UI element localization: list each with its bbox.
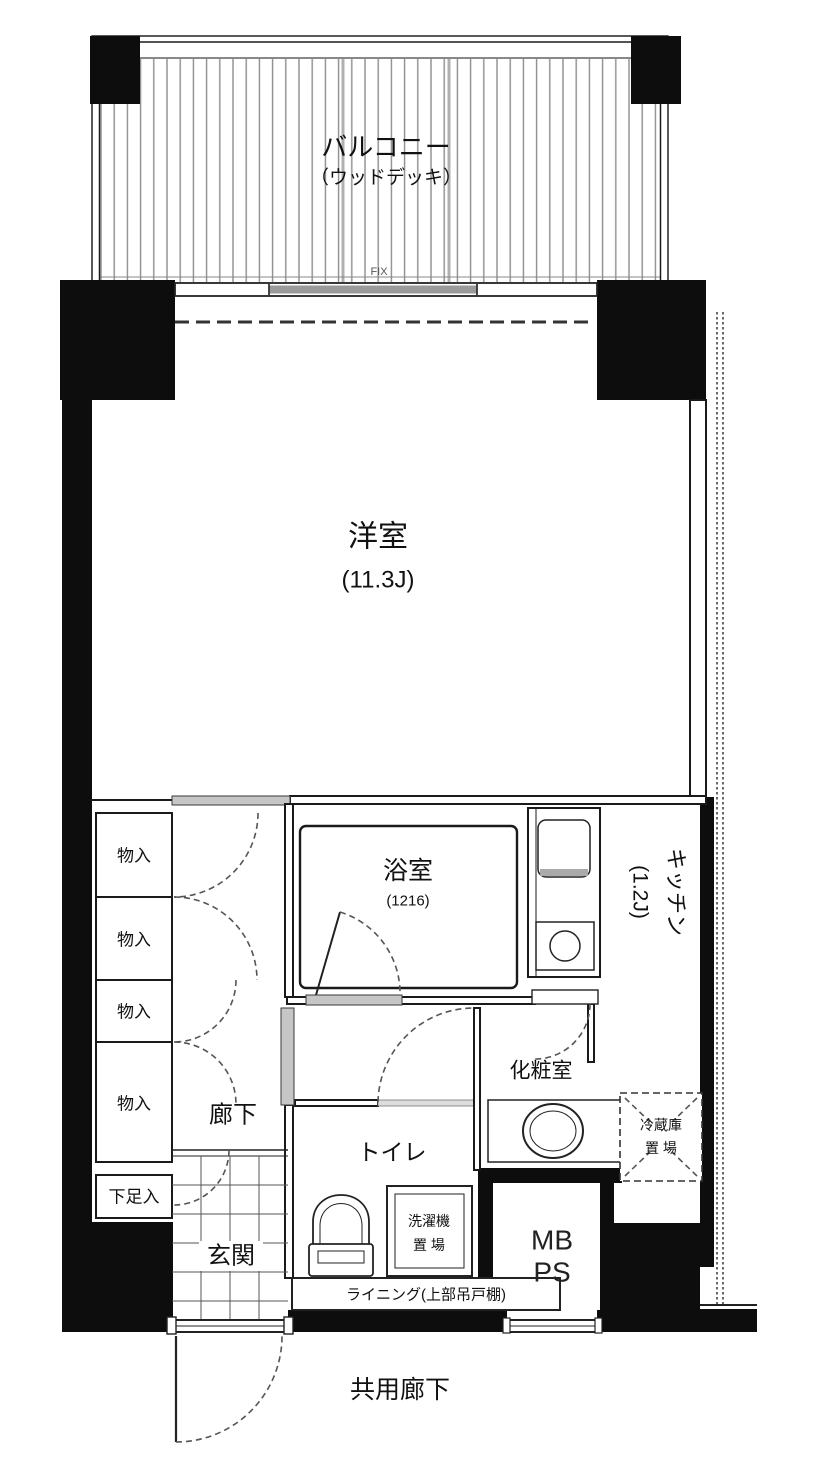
closet-3-door-swing [174,980,236,1042]
closet-3-label: 物入 [117,1003,151,1022]
door-swings [174,813,258,1205]
powder-door-swing [535,1004,590,1059]
wall-right-kitchen [700,797,714,1267]
closet-1-door-swing [174,813,258,897]
fridge-box [620,1093,702,1181]
closet-4-label: 物入 [117,1095,151,1114]
common-corridor-label: 共用廊下 [350,1376,450,1404]
wall-bottom [288,1310,507,1332]
living-room-label: 洋室 [348,521,408,554]
bathroom [300,826,517,1005]
powder-room [488,1004,622,1162]
kitchen-label: キッチン [664,848,689,936]
wall-block-bottom-left [62,1222,173,1332]
shoe-closet-label: 下足入 [109,1188,160,1207]
wall-left [62,280,92,1332]
floor-plan-canvas: バルコニー （ウッドデッキ） FIX 洋室 (11.3J) 物入 物入 物入 物… [0,0,813,1467]
wall-bottom [597,1310,700,1332]
washer-space [387,1186,472,1276]
kitchen-label-group: キッチン (1.2J) [629,848,689,936]
pillar-top-left [90,36,140,104]
wall-living-south [290,796,706,804]
washer-box-outer [387,1186,472,1276]
washer-label-1: 洗濯機 [408,1213,450,1229]
kitchen-size: (1.2J) [629,865,652,919]
toilet-door-swing [378,1008,474,1102]
closet-4-door-swing [174,1042,236,1104]
kitchen-sink [538,820,590,877]
door-jamb [595,1318,602,1333]
fix-window [269,286,477,294]
fridge-label-2: 置 場 [645,1140,677,1156]
closet-1-label: 物入 [117,847,151,866]
balcony-sublabel: （ウッドデッキ） [310,167,462,189]
vanity-counter [488,1100,622,1162]
closet-2-label: 物入 [117,931,151,950]
toilet-label: トイレ [358,1139,427,1165]
wall-right-living [690,400,706,797]
lining-label: ライニング(上部吊戸棚) [346,1287,506,1304]
door-jamb [284,1317,293,1334]
toilet-bowl [313,1195,369,1246]
wall-powder-kitchen-stub [588,1004,594,1062]
closet-2-door-swing [174,897,257,980]
wall-above-meter-box [478,1168,622,1183]
door-jamb [503,1318,510,1333]
balcony-label: バルコニー [321,132,450,162]
entrance-tile-grid [172,1156,288,1320]
living-room-size: (11.3J) [342,567,415,594]
wall-hall-bath [285,804,293,997]
counter-end-panel [532,990,598,1004]
bathroom-label: 浴室 [383,857,433,885]
pillar-top-right [631,36,681,104]
kitchen-counter [528,808,600,1004]
fridge-space [620,1093,702,1181]
entrance-label: 玄関 [207,1243,255,1270]
wall-block-top-right [597,280,706,400]
fix-window-label: FIX [370,266,388,278]
bath-door-sill [306,995,402,1005]
hallway-label: 廊下 [209,1102,257,1129]
fridge-label-1: 冷蔵庫 [640,1117,682,1133]
front-door-swing [176,1336,282,1442]
floor-plan: バルコニー （ウッドデッキ） FIX 洋室 (11.3J) 物入 物入 物入 物… [0,0,813,1467]
stove-base [536,922,594,970]
washer-label-2: 置 場 [413,1237,445,1253]
wall-toilet-north [295,1100,378,1106]
meter-box-label-2: PS [533,1257,570,1288]
wall-toilet-east [474,1008,480,1170]
powder-room-label: 化粧室 [510,1060,573,1083]
door-jamb [167,1317,176,1334]
toilet-tank [309,1244,373,1276]
hallway-doorway-sill [172,796,290,805]
sink-drain-edge [540,869,588,876]
entrance-area [167,1150,293,1442]
hall-anteroom-threshold [281,1008,294,1105]
wall-toilet-west [285,1105,293,1278]
meter-box-door [503,1318,602,1333]
wall-bottom-right-stub [700,1309,757,1332]
meter-box-label-1: MB [531,1225,573,1256]
toilet-doorway-sill [378,1100,474,1106]
wall-right-of-meter-box [600,1183,614,1332]
bathroom-size: (1216) [386,893,429,910]
